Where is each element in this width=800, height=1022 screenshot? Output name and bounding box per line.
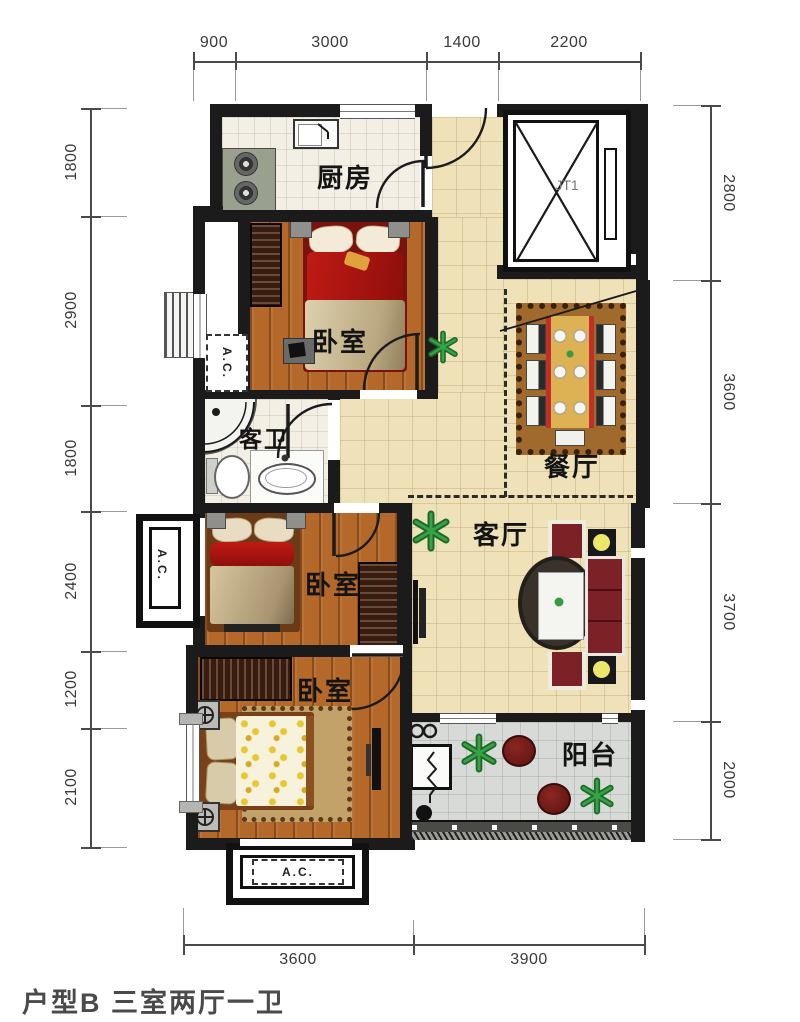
kitchen-sink-basin	[298, 124, 322, 146]
bath-corridor-floor	[340, 392, 505, 505]
armchair	[548, 652, 586, 690]
bedroom-bottom-label: 卧室	[285, 677, 365, 706]
window-frame-block	[179, 713, 203, 725]
balcony-label: 阳台	[545, 741, 635, 770]
kitchen-label: 厨房	[300, 164, 390, 193]
bathroom-door-opening	[328, 400, 340, 460]
wall-bedroom2-top	[193, 503, 412, 513]
wall-balcony-top	[400, 713, 631, 722]
dim-tick	[413, 935, 415, 955]
tv-living-room	[413, 580, 418, 644]
dim-top-1400: 1400	[427, 34, 497, 52]
wall-right-balcony	[631, 712, 645, 842]
dim-left-2400: 2400	[63, 546, 81, 616]
ac-bottom-box: A.C.	[252, 859, 344, 885]
living-label: 客厅	[456, 521, 546, 550]
dim-tick	[701, 280, 721, 282]
living-right-window-b	[631, 700, 645, 710]
bathroom-label: 客卫	[224, 427, 304, 452]
tv-bedroom-bottom	[372, 728, 381, 790]
dining-chair	[526, 324, 546, 354]
wall-left-upper	[193, 206, 205, 294]
dim-tick	[644, 935, 646, 955]
elevator-door-slot	[604, 148, 617, 240]
dim-right-2800: 2800	[719, 158, 737, 228]
tv-bedroom-bottom-stand	[366, 744, 371, 776]
ac-left-label: A.C.	[155, 549, 169, 581]
kitchen-door-opening	[420, 156, 432, 210]
bed-bottom-footboard	[306, 716, 314, 806]
window-frame-block	[179, 801, 203, 813]
louver-window	[164, 292, 194, 358]
balcony-stool	[502, 735, 536, 767]
dim-line-right	[710, 105, 712, 839]
plan-caption: 户型B 三室两厅一卫	[22, 981, 285, 1020]
sink-basin-inner	[265, 468, 307, 488]
bay-opening	[240, 839, 352, 846]
bed-middle-bolster-red	[210, 542, 294, 566]
dim-top-2200: 2200	[534, 34, 604, 52]
dim-top-3000: 3000	[295, 34, 365, 52]
wall-bedroom3-right	[400, 657, 412, 842]
bedroom2-door-opening	[334, 503, 379, 513]
bed-bottom-pillow	[205, 761, 239, 805]
dining-table	[546, 316, 594, 428]
wall-right-dining	[636, 280, 650, 508]
dim-tick	[701, 721, 721, 723]
dim-tick	[701, 503, 721, 505]
dim-left-1800a: 1800	[63, 127, 81, 197]
dim-tick	[81, 216, 101, 218]
wall-left-mid	[193, 394, 205, 518]
washing-machine	[410, 744, 452, 790]
dim-left-1800b: 1800	[63, 423, 81, 493]
bed-middle-footboard	[224, 624, 280, 632]
ac-upper-box: A.C.	[206, 334, 248, 392]
dining-chair	[526, 360, 546, 390]
wardrobe-bedroom-bottom	[200, 657, 292, 701]
bedroom3-left-window	[186, 721, 200, 807]
wall-kitchen-top-left	[222, 104, 340, 117]
floor-plan-page: 900 3000 1400 2200 1800 2900 1800 2400 1…	[0, 0, 800, 1022]
coffee-table	[538, 572, 584, 640]
dim-top-900: 900	[184, 34, 244, 52]
bedroom3-door-opening	[350, 645, 403, 657]
bed-middle-blanket	[210, 566, 294, 624]
elevator-label: JT1	[545, 178, 589, 193]
wall-right-living	[631, 503, 645, 718]
dim-line-top	[193, 61, 641, 63]
dim-tick	[701, 839, 721, 841]
dining-chair	[596, 360, 616, 390]
dim-tick	[81, 108, 101, 110]
wall-right-upper	[636, 104, 648, 290]
balcony-railing-posts	[412, 825, 631, 830]
dining-chair	[596, 396, 616, 426]
nightstand	[290, 220, 312, 238]
side-table-lamp	[588, 529, 616, 557]
dim-right-2000: 2000	[719, 745, 737, 815]
dim-tick	[193, 52, 195, 70]
side-corridor-floor	[438, 217, 505, 394]
balcony-sliding-door	[440, 713, 496, 724]
ac-upper-label: A.C.	[220, 347, 234, 379]
dim-tick	[235, 52, 237, 70]
sofa	[585, 556, 625, 656]
side-table-lamp	[588, 656, 616, 684]
wall-kitchen-bottom	[205, 210, 432, 222]
dining-zone-dashed-line	[504, 289, 507, 497]
lamp-bulb	[593, 534, 610, 551]
toilet-bowl	[214, 455, 250, 499]
dim-tick	[701, 105, 721, 107]
dim-left-2900: 2900	[63, 275, 81, 345]
left-upper-window	[193, 294, 207, 358]
nightstand	[206, 512, 226, 529]
dim-left-2100: 2100	[63, 752, 81, 822]
dim-tick	[81, 651, 101, 653]
dim-left-1200: 1200	[63, 654, 81, 724]
dim-tick	[81, 847, 101, 849]
nightstand	[286, 512, 306, 529]
armchair	[548, 520, 586, 558]
wardrobe-bedroom-top	[250, 223, 282, 307]
dim-line-left	[90, 108, 92, 847]
dining-chair	[596, 324, 616, 354]
dim-tick	[640, 52, 642, 70]
living-right-window-a	[631, 548, 645, 558]
tv-living-room-unit	[419, 588, 426, 638]
ac-left-box: A.C.	[152, 532, 172, 598]
kitchen-top-window	[340, 104, 415, 119]
dim-bottom-3900: 3900	[494, 951, 564, 969]
wall-bedroom2-right	[397, 503, 412, 657]
dim-tick	[81, 405, 101, 407]
lamp-bulb	[593, 661, 610, 678]
balcony-railing-hatch	[412, 832, 631, 840]
dim-tick	[81, 511, 101, 513]
dim-right-3600: 3600	[719, 357, 737, 427]
stove-burner	[234, 152, 258, 176]
wall-left-upper-b	[193, 358, 205, 394]
dining-chair-end	[555, 430, 585, 446]
wall-kitchen-left	[210, 104, 222, 217]
dim-bottom-3600: 3600	[263, 951, 333, 969]
dim-tick	[183, 935, 185, 955]
dining-label: 餐厅	[527, 453, 617, 482]
ac-bottom-label: A.C.	[282, 865, 314, 879]
dim-right-3700: 3700	[719, 577, 737, 647]
balcony-window-small	[602, 713, 618, 724]
dim-tick	[426, 52, 428, 70]
dim-tick	[498, 52, 500, 70]
bedroom-middle-label: 卧室	[293, 571, 373, 600]
nightstand	[388, 220, 410, 238]
dining-chair	[526, 396, 546, 426]
dim-tick	[81, 728, 101, 730]
bedroom1-door-opening	[360, 390, 417, 399]
stove-burner	[234, 181, 258, 205]
wall-bedroom1-right	[425, 217, 438, 397]
bed-bottom-floral-blanket	[236, 716, 308, 806]
bedroom-top-label: 卧室	[300, 328, 380, 357]
living-zone-dashed-line	[408, 495, 633, 498]
balcony-stool	[537, 783, 571, 815]
